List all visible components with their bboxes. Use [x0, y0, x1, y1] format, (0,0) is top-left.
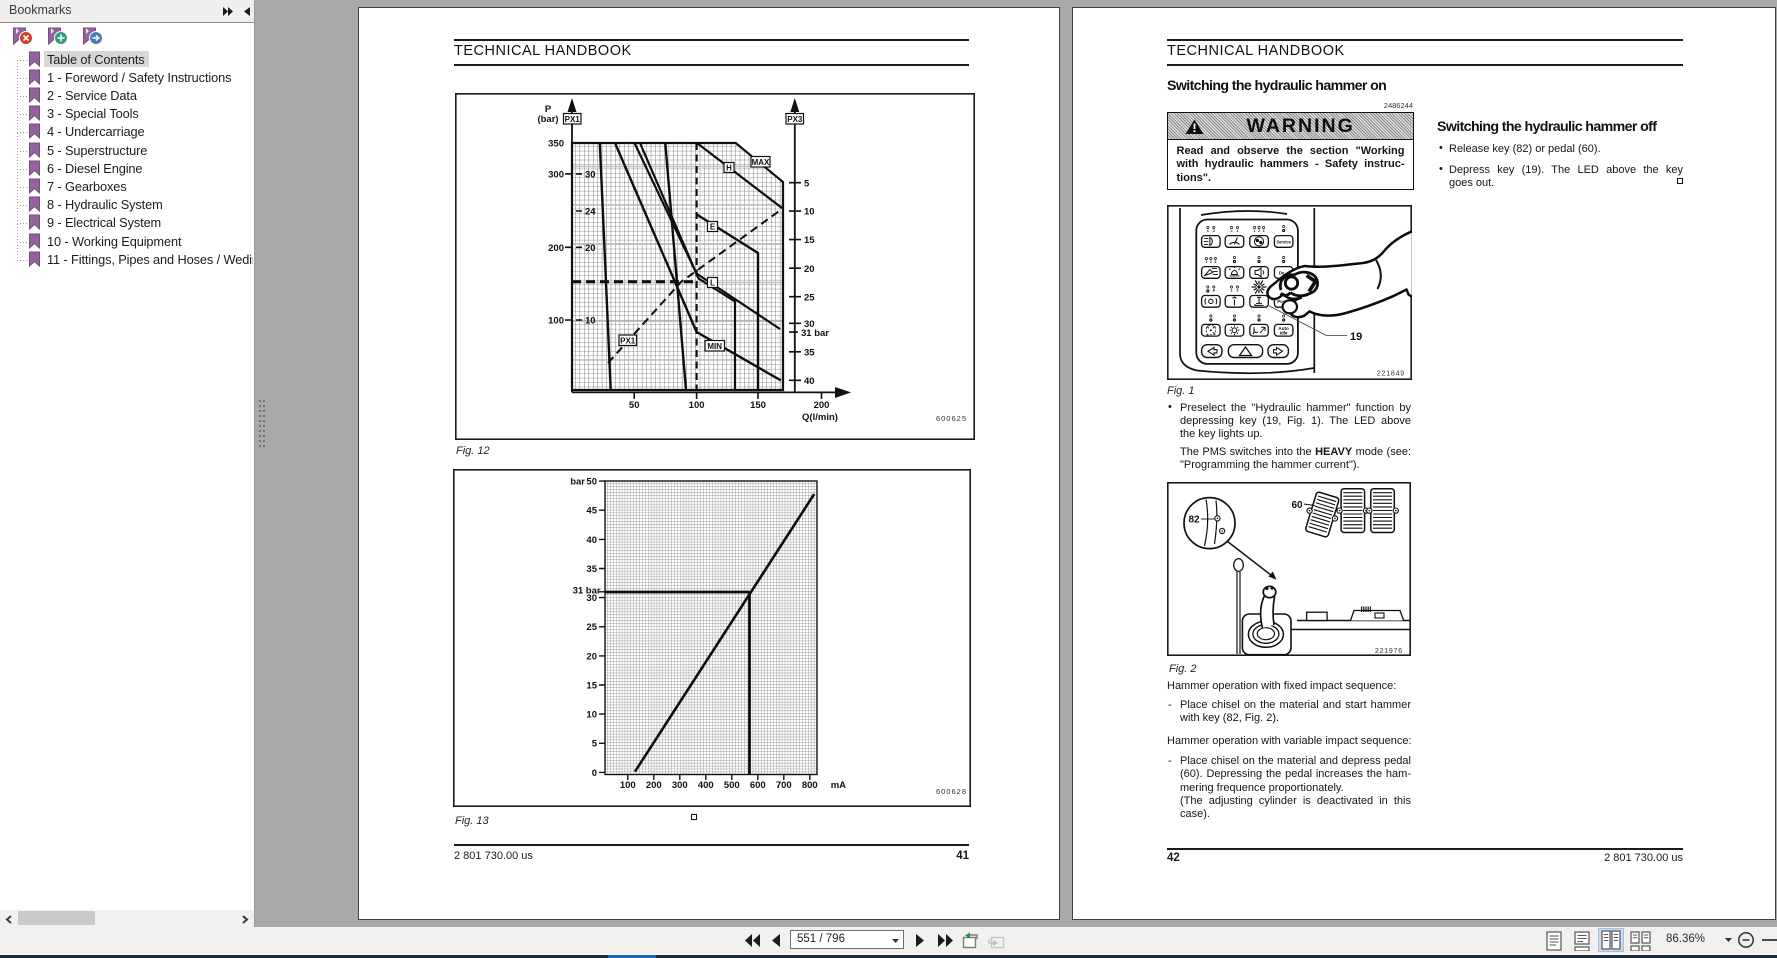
svg-text:500: 500	[724, 780, 740, 791]
svg-text:40: 40	[586, 535, 597, 546]
svg-text:(bar): (bar)	[537, 114, 558, 125]
svg-text:800: 800	[802, 780, 818, 791]
svg-text:PX1: PX1	[620, 336, 636, 345]
svg-text:200: 200	[814, 400, 830, 411]
svg-text:E: E	[710, 223, 716, 232]
svg-text:bar: bar	[570, 477, 585, 488]
svg-text:20: 20	[804, 264, 815, 275]
svg-text:400: 400	[698, 780, 714, 791]
svg-text:Q(l/min): Q(l/min)	[802, 412, 838, 423]
svg-text:1: 1	[1230, 289, 1232, 293]
svg-text:Idle: Idle	[1280, 331, 1288, 336]
svg-text:30: 30	[585, 170, 596, 181]
svg-text:19: 19	[1350, 331, 1362, 343]
svg-text:50: 50	[586, 477, 597, 488]
svg-text:35: 35	[804, 347, 815, 358]
svg-text:10: 10	[804, 207, 815, 218]
svg-text:40: 40	[804, 376, 815, 387]
svg-text:150: 150	[750, 400, 766, 411]
svg-text:20: 20	[585, 243, 596, 254]
svg-text:300: 300	[672, 780, 688, 791]
svg-text:31 bar: 31 bar	[573, 586, 601, 597]
svg-text:15: 15	[804, 235, 815, 246]
svg-text:s: s	[1254, 303, 1256, 307]
svg-text:221976: 221976	[1375, 648, 1403, 655]
svg-text:100: 100	[620, 780, 636, 791]
svg-text:600625: 600625	[936, 414, 967, 423]
svg-text:45: 45	[586, 506, 597, 517]
svg-text:1: 1	[1254, 229, 1256, 233]
svg-text:31 bar: 31 bar	[801, 328, 829, 339]
svg-text:10: 10	[586, 710, 597, 721]
svg-text:35: 35	[586, 564, 597, 575]
svg-text:PX3: PX3	[787, 115, 803, 124]
svg-text:A: A	[1213, 289, 1216, 293]
svg-text:350: 350	[548, 139, 564, 150]
svg-text:1: 1	[1205, 260, 1207, 264]
svg-text:0: 0	[592, 768, 597, 779]
svg-text:221849: 221849	[1377, 371, 1405, 378]
svg-text:200: 200	[548, 243, 564, 254]
svg-text:H: H	[726, 164, 732, 173]
svg-text:100: 100	[548, 316, 564, 327]
svg-text:5: 5	[592, 739, 598, 750]
svg-text:600628: 600628	[936, 787, 967, 796]
svg-text:3: 3	[1214, 260, 1216, 264]
svg-text:L: L	[710, 279, 715, 288]
svg-text:15: 15	[586, 680, 597, 691]
svg-text:25: 25	[804, 292, 815, 303]
svg-text:J: J	[1230, 229, 1232, 233]
svg-text:MIN: MIN	[707, 342, 722, 351]
svg-text:1: 1	[1207, 229, 1209, 233]
svg-text:600: 600	[750, 780, 766, 791]
svg-text:2: 2	[1210, 260, 1212, 264]
svg-text:25: 25	[586, 622, 597, 633]
svg-text:2: 2	[1258, 229, 1260, 233]
svg-text:82: 82	[1189, 515, 1201, 526]
svg-text:PX1: PX1	[565, 115, 581, 124]
svg-text:100: 100	[689, 400, 705, 411]
svg-text:Service: Service	[1276, 239, 1291, 244]
svg-text:mA: mA	[831, 780, 846, 791]
svg-text:50: 50	[629, 400, 640, 411]
svg-text:2: 2	[1236, 289, 1238, 293]
svg-text:300: 300	[548, 170, 564, 181]
svg-text:1: 1	[1236, 229, 1238, 233]
svg-text:MAX: MAX	[752, 158, 770, 167]
svg-text:60: 60	[1292, 500, 1304, 511]
svg-text:24: 24	[585, 207, 596, 218]
svg-text:10: 10	[585, 316, 596, 327]
svg-text:5: 5	[804, 178, 810, 189]
svg-text:2: 2	[1213, 229, 1215, 233]
svg-text:700: 700	[776, 780, 792, 791]
svg-text:3: 3	[1263, 229, 1265, 233]
svg-text:200: 200	[646, 780, 662, 791]
svg-text:20: 20	[586, 651, 597, 662]
